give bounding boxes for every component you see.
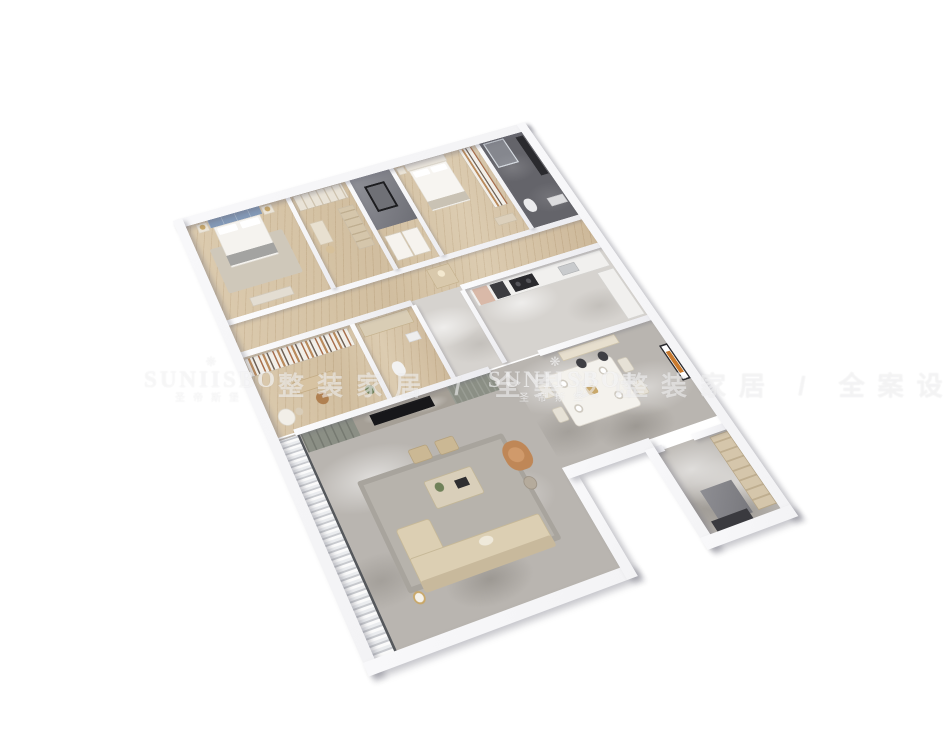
watermark-brand-chinese: 圣帝斯堡: [175, 393, 247, 405]
watermark-brand-text: SUNIISBO: [144, 368, 278, 392]
watermark-logo-2: ❋ SUNIISBO 圣帝斯堡: [487, 356, 623, 405]
watermark-slogan-2: 整装家居 / 全案设计: [622, 366, 950, 403]
watermark-brand-text: SUNIISBO: [488, 368, 622, 392]
watermark-brand-chinese: 圣帝斯堡: [519, 393, 591, 405]
watermark-logo-1: ❋ SUNIISBO 圣帝斯堡: [143, 356, 279, 405]
floorplan-render-canvas: ❋ SUNIISBO 圣帝斯堡 整装家居 / 全案设计 ❋ SUNIISBO 圣…: [0, 0, 950, 733]
